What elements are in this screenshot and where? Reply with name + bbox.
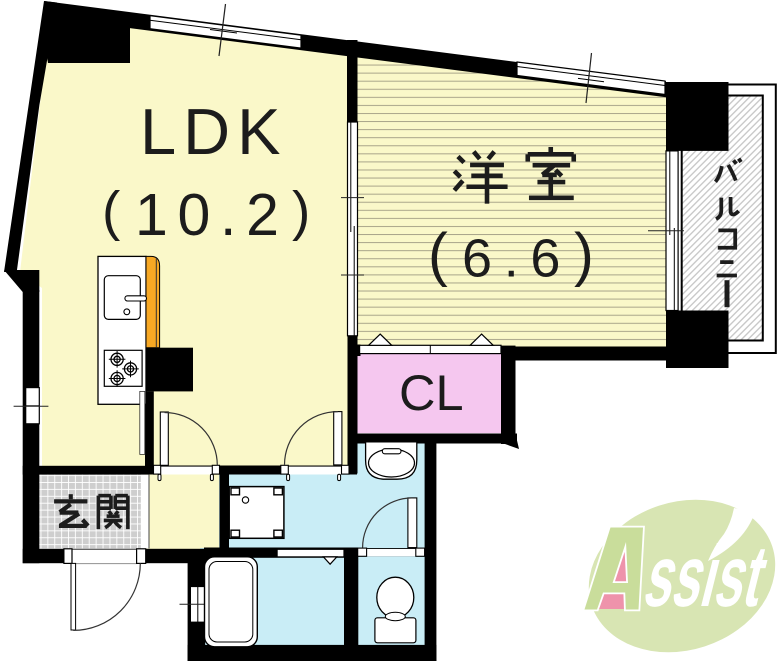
svg-text:10.2: 10.2 [135,182,289,248]
svg-text:CL: CL [399,364,464,421]
svg-text:6.6: 6.6 [462,229,572,289]
svg-text:LDK: LDK [140,95,287,168]
svg-text:): ) [292,180,310,242]
svg-text:(: ( [102,180,120,242]
svg-text:(: ( [428,220,448,287]
svg-text:): ) [574,220,594,287]
svg-text:ssist: ssist [636,528,776,625]
